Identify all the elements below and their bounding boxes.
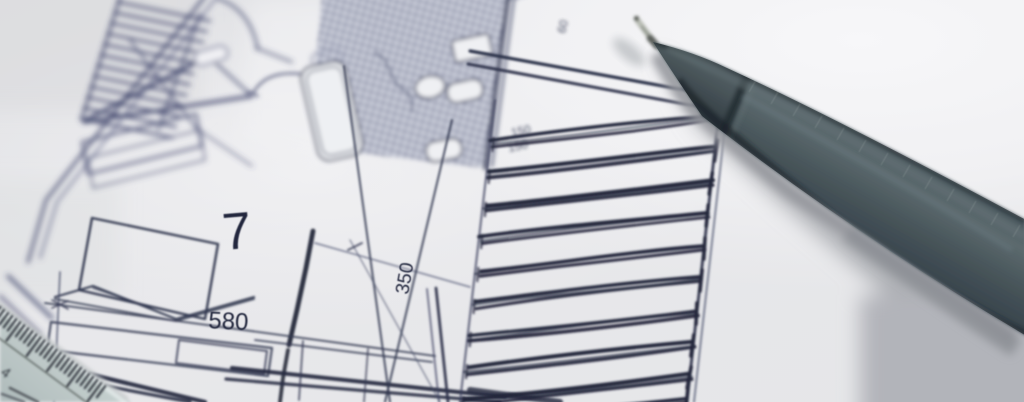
svg-text:580: 580 <box>208 307 249 336</box>
svg-text:7: 7 <box>220 202 254 262</box>
